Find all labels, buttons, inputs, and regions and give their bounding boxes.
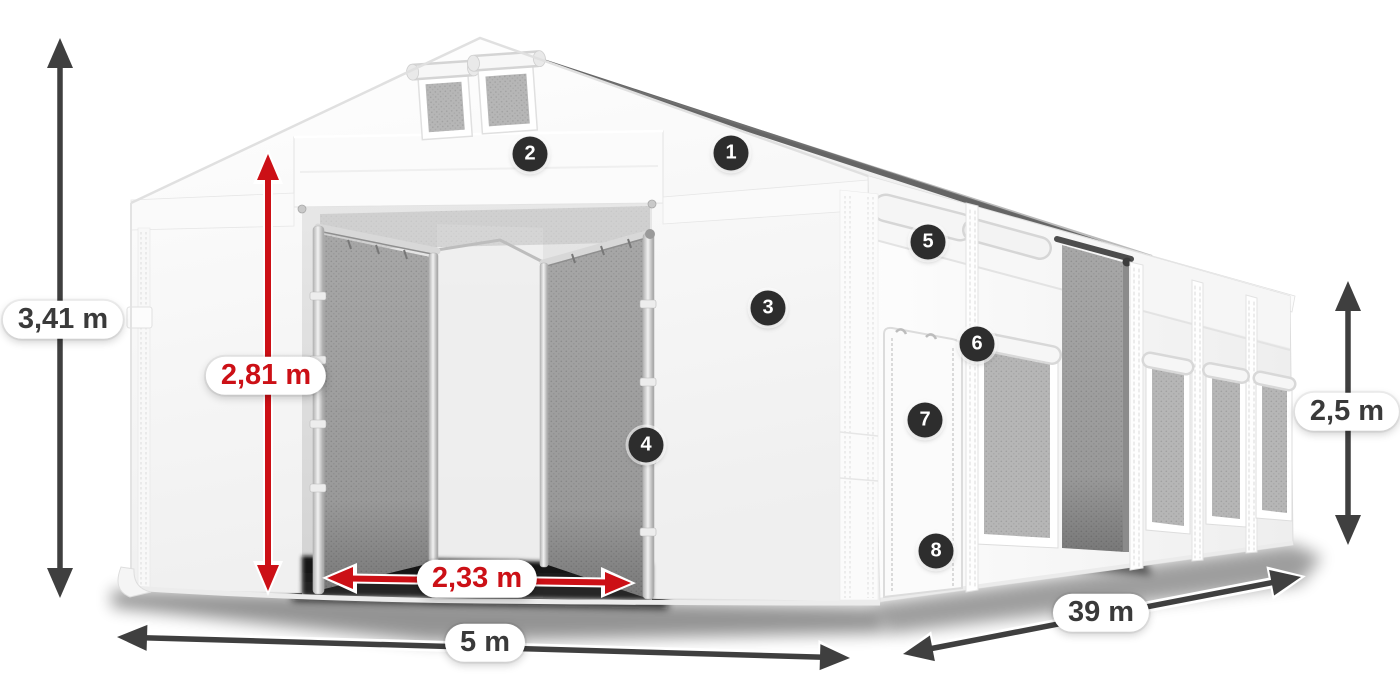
dimension-label-length: 39 m: [1053, 594, 1149, 632]
callout-badge-6[interactable]: 6: [960, 327, 995, 362]
dimension-label-width: 5 m: [445, 624, 525, 662]
dimension-label-side-height: 2,5 m: [1295, 393, 1399, 431]
dimension-arrows: [0, 0, 1400, 700]
dimension-label-entrance-width: 2,33 m: [417, 560, 537, 598]
tent-dimension-figure: 3,41 m 2,81 m 2,33 m 5 m 39 m 2,5 m 1 2 …: [0, 0, 1400, 700]
callout-badge-5[interactable]: 5: [911, 225, 946, 260]
callout-badge-3[interactable]: 3: [751, 291, 786, 326]
callout-badge-4[interactable]: 4: [629, 428, 664, 463]
callout-badge-8[interactable]: 8: [919, 534, 954, 569]
dimension-label-entrance-height: 2,81 m: [206, 357, 326, 395]
arrow-casings: [43, 33, 1365, 674]
callout-badge-7[interactable]: 7: [908, 403, 943, 438]
dimension-label-total-height: 3,41 m: [3, 301, 123, 339]
callout-badge-1[interactable]: 1: [714, 136, 749, 171]
callout-badge-2[interactable]: 2: [513, 137, 548, 172]
